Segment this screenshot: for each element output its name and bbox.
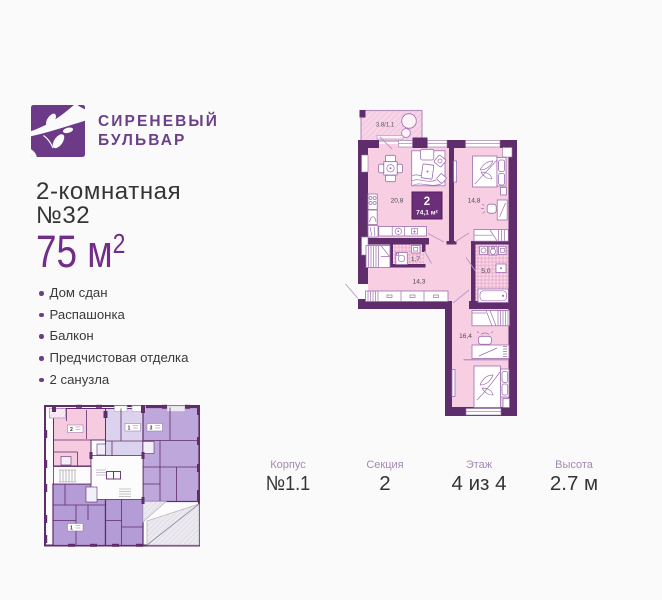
svg-text:14,8: 14,8 [468,198,481,205]
svg-text:5,0: 5,0 [481,268,490,275]
svg-text:1: 1 [70,526,73,532]
svg-text:20,8: 20,8 [391,198,404,205]
svg-text:3: 3 [150,426,153,432]
svg-text:2: 2 [424,196,430,208]
svg-text:74,1 м²: 74,1 м² [416,210,439,217]
svg-text:2: 2 [70,427,73,433]
svg-text:16,4: 16,4 [459,333,472,340]
svg-text:14,3: 14,3 [413,279,426,286]
svg-text:1: 1 [128,426,131,432]
svg-text:1,7: 1,7 [411,256,420,263]
svg-text:3.8/1.1: 3.8/1.1 [376,123,395,129]
